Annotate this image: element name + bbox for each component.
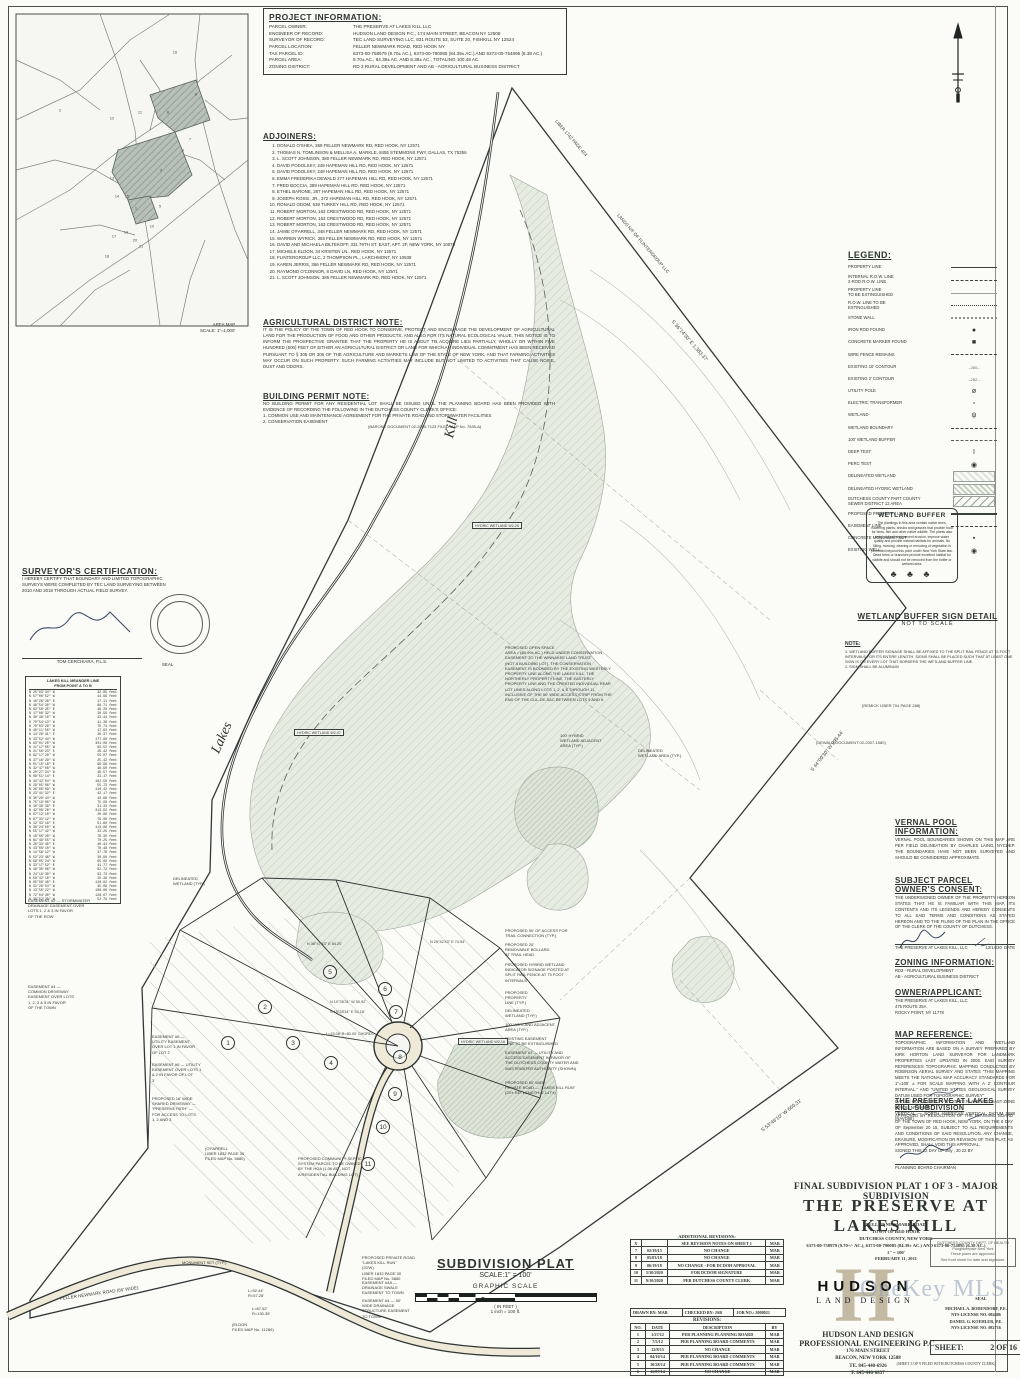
legend-symbol-g-: ▫	[950, 399, 998, 408]
consent-body: THE UNDERSIGNED OWNER OF THE PROPERTY HE…	[895, 895, 1015, 930]
owner-title: OWNER/APPLICANT:	[895, 988, 1015, 997]
zoning-body: RD3 - RURAL DEVELOPMENT AB - AGRICULTURA…	[895, 968, 1015, 980]
legend-row: ELECTRIC TRANSFORMER▫	[848, 399, 998, 408]
legend-symbol-line-dotted	[950, 301, 998, 310]
adjoiner-item: DAVID PODOLSKY, 249 HAPEMAN HILL RD, RED…	[277, 163, 555, 170]
legend-label: PROPERTY LINE	[848, 265, 944, 270]
meander-title: LAKES KILL MEANDER LINE FROM POINT A TO …	[29, 679, 117, 690]
wetland-sign-title: WETLAND BUFFER	[871, 512, 953, 519]
project-info-label: SURVEYOR OF RECORD:	[269, 37, 347, 44]
tree-icons: ♣ ♣ ♣	[871, 569, 953, 579]
legend-symbol-g-: ◉	[950, 460, 998, 469]
legend-label: STONE WALL	[848, 316, 944, 321]
legend-symbol-g-I: I	[950, 448, 998, 457]
adjoiner-item: FLINTERGROUP LLC, 2 THOMPSON PL., LARCHM…	[277, 255, 555, 262]
legend-label: DUTCHESS COUNTY PART COUNTY SEWER DISTRI…	[848, 497, 944, 507]
legend-symbol-line-stone	[950, 314, 998, 323]
legend-label: INTERNAL R.O.W. LINE 2-ROD R.O.W. LINE	[848, 275, 944, 285]
legend-label: DELINEATED HYDRIC WETLAND	[848, 487, 944, 492]
pe-names: MICHAEL A. BODENDORF, P.E. NYS LICENSE N…	[938, 1306, 1014, 1331]
legend-label: DELINEATED WETLAND	[848, 474, 944, 479]
consent-signer: THE PRESERVE AT LAKES KILL, LLC	[895, 945, 968, 950]
project-info-label: PARCEL LOCATION:	[269, 44, 347, 51]
legend-row: STONE WALL	[848, 314, 998, 323]
legend-row: IRON ROD FOUND●	[848, 326, 998, 335]
owner-applicant: OWNER/APPLICANT: THE PRESERVE AT LAKES K…	[895, 988, 1015, 1016]
surveyor-seal	[150, 594, 210, 654]
adjoiner-item: EMMA FREDERIKA DEWALD 277 HAPEMAN HILL R…	[277, 176, 555, 183]
legend-row: WIRE FENCE REMAINS	[848, 350, 998, 359]
project-info-value: HUDSON LAND DESIGN P.C., 174 MAIN STREET…	[353, 31, 561, 38]
legend-symbol-line-faint	[950, 289, 998, 298]
wetland-buffer-sign: WETLAND BUFFER The plantings in this are…	[866, 508, 958, 583]
surveyor-certification: SURVEYOR'S CERTIFICATION: I HEREBY CERTI…	[22, 566, 232, 594]
project-info-value: FELLER NEWMARK ROAD, RED HOOK NY	[353, 44, 561, 51]
project-info-value: 9.70± AC., 84.39± AC. AND 6.38± AC., TOT…	[353, 57, 561, 64]
sheet-number-box: SHEET: 2 OF 16	[930, 1340, 1020, 1355]
legend-row: WETLAND BOUNDARY	[848, 424, 998, 433]
adjoiner-item: ROBERT MORTON, 163 CRESTWOOD RD, RED HOO…	[277, 222, 555, 229]
legend-row: DELINEATED WETLAND	[848, 472, 998, 481]
legend-label: EXISTING 2' CONTOUR	[848, 377, 944, 382]
graphic-scale-bar	[415, 1293, 597, 1302]
firm-name: HUDSON LAND DESIGN	[778, 1330, 958, 1339]
project-info-box: PROJECT INFORMATION: PARCEL OWNER:THE PR…	[263, 8, 567, 75]
project-info-label: TAX PARCEL ID:	[269, 51, 347, 58]
north-arrow	[952, 24, 964, 102]
seal-word: SEAL	[162, 662, 173, 667]
health-dept-stamp: DUTCHESS COUNTY DEPT. OF HEALTH Poughkee…	[930, 1238, 1016, 1267]
legend-label: CONCRETE MARKER FOUND	[848, 340, 944, 345]
project-info-value: TEC LAND SURVEYING LLC, 831 ROUTE 52, SU…	[353, 37, 561, 44]
wetland-sign-body: The plantings in this area contain nativ…	[871, 521, 953, 567]
adjoiner-item: THOMAS N. TOMLINSON & MELLISA A. MARKLE,…	[277, 150, 555, 157]
revision-row: 11/27/12PER PLANNING PLANNING BOARDMAB	[631, 1331, 784, 1338]
legend-row: WETLANDψ	[848, 411, 998, 420]
legend-row: EXISTING 2' CONTOUR–282–	[848, 375, 998, 384]
checked-by: CHECKED BY: JSB	[683, 1309, 735, 1316]
additional-revisions-table: ADDITIONAL REVISIONS: XSEE REVISION NOTE…	[630, 1234, 784, 1285]
legend-row: DEEP TESTI	[848, 448, 998, 457]
additional-revision-row: 702/19/15NO CHANGEMAB	[631, 1247, 784, 1254]
zoning-info: ZONING INFORMATION: RD3 - RURAL DEVELOPM…	[895, 958, 1015, 980]
revision-row: 312/8/13NO CHANGEMAB	[631, 1346, 784, 1353]
legend-symbol-swatch-hydric	[950, 485, 998, 494]
inset-area-map	[16, 14, 248, 326]
project-info-label: ENGINEER OF RECORD:	[269, 31, 347, 38]
legend-label: UTILITY POLE	[848, 389, 944, 394]
project-info-value: THE PRESERVE AT LAKES KILL LLC	[353, 24, 561, 31]
legend-symbol-line-solid	[950, 263, 998, 272]
legend-symbol-g-: ●	[950, 326, 998, 335]
vernal-title: VERNAL POOL INFORMATION:	[895, 818, 1015, 836]
vernal-pool-info: VERNAL POOL INFORMATION: VERNAL POOL BOU…	[895, 818, 1015, 861]
additional-revision-row: 805/03/18NO CHANGEMAB	[631, 1254, 784, 1261]
plat-title: SUBDIVISION PLAT	[398, 1256, 613, 1271]
plat-sheet: AREA MAP SCALE: 1"=1,000' PROJECT INFORM…	[0, 0, 1020, 1378]
adjoiner-item: KAREN JERRIS, 366 FELLER NEWMARK RD, RED…	[277, 262, 555, 269]
permit-note-body: NO BUILDING PERMIT FOR ANY RESIDENTIAL L…	[263, 401, 555, 426]
legend-label: PROPERTY LINE TO BE EXTINGUISHED	[848, 288, 944, 298]
project-info-value: 6373-00-758979 (9.70± AC.), 6373-00-7900…	[353, 51, 561, 58]
meander-rows: N 25°03'34" W32.05 feetN 57°06'52" W44.9…	[29, 690, 117, 901]
wetland-detail-title: WETLAND BUFFER SIGN DETAIL	[845, 612, 1010, 621]
project-info-value: RD 3 RURAL DEVELOPMENT AND AB - AGRICULT…	[353, 64, 561, 71]
inset-caption: AREA MAP SCALE: 1"=1,000'	[200, 322, 235, 334]
onekey-mls-watermark: OneKey MLS	[860, 1276, 1005, 1303]
revision-row: 27/5/12PER PLANNING BOARD COMMENTSMAB	[631, 1338, 784, 1345]
additional-revision-row: 906/19/18NO CHANGE - FOR DCDOH APPROVALM…	[631, 1262, 784, 1269]
legend-row: CONCRETE MARKER FOUND■	[848, 338, 998, 347]
legend-label: WETLAND	[848, 413, 944, 418]
surveyor-body: I HEREBY CERTIFY THAT BOUNDARY AND LIMIT…	[22, 576, 172, 594]
meander-line-table: LAKES KILL MEANDER LINE FROM POINT A TO …	[25, 676, 121, 904]
subdivision-approval: THE PRESERVE AT LAKES KILL SUBDIVISION A…	[895, 1098, 1013, 1170]
wetland-note-title: NOTE:	[845, 641, 861, 647]
additional-revision-row: 105/30/2020FOR DCDOH SIGNATUREMAB	[631, 1269, 784, 1276]
owner-consent: SUBJECT PARCEL OWNER'S CONSENT: THE UNDE…	[895, 876, 1015, 950]
legend-symbol-g-: ■	[950, 338, 998, 347]
consent-signature-line: THE PRESERVE AT LAKES KILL, LLC 12/14/20…	[895, 944, 1015, 950]
adjoiner-item: MICHELE ELDON, 34 KRISTEN LN., RED HOOK,…	[277, 249, 555, 256]
revisions-header: DESCRIPTION	[670, 1324, 766, 1331]
adjoiner-item: DAVID AND MICHAELA BILTEKOFF, 331 79TH S…	[277, 242, 555, 249]
adjoiner-item: RAYMOND O'CONNOR, 8 DAVID LN, RED HOOK, …	[277, 269, 555, 276]
wetland-note-body: 1. WETLAND BUFFER SIGNAGE SHALL BE AFFIX…	[845, 650, 1013, 671]
legend-label: WIRE FENCE REMAINS	[848, 353, 944, 358]
adjoiner-item: ROBERT MORTON, 163 CRESTWOOD RD, RED HOO…	[277, 216, 555, 223]
adjoiner-item: ETHEL BARONE, 287 HAPEMAN HILL RD, RED H…	[277, 189, 555, 196]
job-no: JOB NO.: 2008021	[734, 1309, 785, 1316]
legend-symbol-swatch-wetland	[950, 472, 998, 481]
revisions-header: DATE	[645, 1324, 669, 1331]
map-ref-title: MAP REFERENCE:	[895, 1030, 1015, 1039]
legend-row: PROPERTY LINE TO BE EXTINGUISHED	[848, 288, 998, 298]
adjoiner-item: RONALD ODOM, 538 TURKEY HILL RD, RED HOO…	[277, 202, 555, 209]
vernal-body: VERNAL POOL BOUNDARIES SHOWN ON THIS MAP…	[895, 837, 1015, 861]
adjoiner-item: WARREN WYRICK, 355 FELLER NEWMARK RD, RE…	[277, 236, 555, 243]
approval-body: APPROVED BY RESOLUTION OF THE PLANNING B…	[895, 1113, 1013, 1154]
adjoiner-item: L. SCOTT JOHNSON, 385 FELLER NEWMARK RD,…	[277, 275, 555, 282]
surveyor-title: SURVEYOR'S CERTIFICATION:	[22, 566, 232, 576]
additional-revision-row: 119/10/2020PER DUTCHESS COUNTY CLERKMAB	[631, 1277, 784, 1284]
zoning-title: ZONING INFORMATION:	[895, 958, 1015, 967]
legend-row: PROPERTY LINE	[848, 263, 998, 272]
revisions-table: REVISIONS: NO.DATEDESCRIPTIONBY11/27/12P…	[630, 1318, 784, 1376]
legend-label: DEEP TEST	[848, 450, 944, 455]
adjoiners-block: ADJOINERS: DONALD O'SHEA, 369 FELLER NEW…	[263, 132, 555, 282]
legend-title: LEGEND:	[848, 250, 998, 260]
ag-note-title: AGRICULTURAL DISTRICT NOTE:	[263, 318, 555, 327]
legend-symbol-line-dashed	[950, 276, 998, 285]
sheet-label: SHEET:	[935, 1343, 964, 1352]
surveyor-signature	[30, 612, 130, 640]
consent-title: SUBJECT PARCEL OWNER'S CONSENT:	[895, 876, 1015, 894]
subdivision-plat-label: SUBDIVISION PLAT SCALE:1" = 100' GRAPHIC…	[398, 1256, 613, 1314]
consent-date: 12/14/20	[986, 945, 1002, 950]
revision-row: 611/07/14NO CHANGEMAB	[631, 1368, 784, 1375]
ag-note-body: IT IS THE POLICY OF THE TOWN OF RED HOOK…	[263, 327, 555, 370]
ag-district-note: AGRICULTURAL DISTRICT NOTE: IT IS THE PO…	[263, 318, 555, 370]
legend-row: PERC TEST◉	[848, 460, 998, 469]
adjoiners-title: ADJOINERS:	[263, 132, 555, 141]
sheet-footnote: (SHEET 3 OF 9 FILED WITH DUTCHESS COUNTY…	[880, 1362, 1012, 1366]
legend-row: EXISTING 10' CONTOUR–280–	[848, 363, 998, 372]
contours	[560, 270, 790, 990]
legend-label: PERC TEST	[848, 462, 944, 467]
sheet-value: 2 OF 16	[990, 1343, 1017, 1352]
revision-row: 404/10/14PER PLANNING BOARD COMMENTSMAB	[631, 1353, 784, 1360]
legend-symbol-line-dashed	[950, 424, 998, 433]
project-info-title: PROJECT INFORMATION:	[269, 12, 561, 22]
legend-row: UTILITY POLEø	[848, 387, 998, 396]
legend-symbol-g-: ø	[950, 387, 998, 396]
legend-row: DUTCHESS COUNTY PART COUNTY SEWER DISTRI…	[848, 497, 998, 507]
legend-symbol-line-longdash	[950, 436, 998, 445]
permit-note-title: BUILDING PERMIT NOTE:	[263, 392, 555, 401]
project-info-label: PARCEL AREA:	[269, 57, 347, 64]
adjoiner-item: L. SCOTT JOHNSON, 380 FELLER NEWMARK RD,…	[277, 156, 555, 163]
legend-label: R.O.W. LINE TO BE EXTINGUISHED	[848, 301, 944, 311]
adjoiner-item: DONALD O'SHEA, 369 FELLER NEWMARK RD, RE…	[277, 143, 555, 150]
revisions-header: NO.	[631, 1324, 646, 1331]
adjoiner-item: ROBERT MORTON, 163 CRESTWOOD RD, RED HOO…	[277, 209, 555, 216]
owner-body: THE PRESERVE AT LAKES KILL, LLC 475 ROUT…	[895, 998, 1015, 1016]
project-info-label: PARCEL OWNER:	[269, 24, 347, 31]
legend-symbol-t-280-: –280–	[950, 363, 998, 372]
legend-label: ELECTRIC TRANSFORMER	[848, 401, 944, 406]
project-info-label: ZONING DISTRICT:	[269, 64, 347, 71]
legend-symbol-g-: ψ	[950, 411, 998, 420]
plat-scale: SCALE:1" = 100'	[398, 1272, 613, 1279]
legend-row: 100' WETLAND BUFFER	[848, 436, 998, 445]
additional-revision-row: XSEE REVISION NOTES ON SHEET 1MAB	[631, 1240, 784, 1247]
wetland-sign-note: NOTE: 1. WETLAND BUFFER SIGNAGE SHALL BE…	[845, 632, 1013, 671]
wetland-sign-detail: WETLAND BUFFER SIGN DETAIL NOT TO SCALE	[845, 612, 1010, 627]
adjoiner-item: FRED BOCCIA, 289 HAPEMAN HILL RD, RED HO…	[277, 183, 555, 190]
drawn-by-row: DRAWN BY: MAB CHECKED BY: JSB JOB NO.: 2…	[630, 1308, 786, 1317]
project-info-rows: PARCEL OWNER:THE PRESERVE AT LAKES KILL …	[269, 24, 561, 71]
legend-label: IRON ROD FOUND	[848, 328, 944, 333]
legend-symbol-t-282-: –282–	[950, 375, 998, 384]
building-permit-note: BUILDING PERMIT NOTE: NO BUILDING PERMIT…	[263, 392, 555, 426]
legend-label: EXISTING 10' CONTOUR	[848, 365, 944, 370]
approval-title: THE PRESERVE AT LAKES KILL SUBDIVISION	[895, 1098, 1013, 1112]
meander-row: N 36°52'30" W52.79 feet	[29, 897, 117, 901]
legend-symbol-line-fence	[950, 350, 998, 359]
wetland-detail-sub: NOT TO SCALE	[845, 621, 1010, 627]
surveyor-name: TOM CERCHIARA, P.L.S.	[22, 658, 142, 664]
approval-signer: PLANNING BOARD CHAIRMAN	[895, 1165, 956, 1170]
adjoiner-item: DAVID PODOLSKY, 249 HAPEMAN HILL RD, RED…	[277, 169, 555, 176]
scale-ratio: 1 inch = 100 ft.	[491, 1309, 521, 1314]
legend-row: R.O.W. LINE TO BE EXTINGUISHED	[848, 301, 998, 311]
legend-label: 100' WETLAND BUFFER	[848, 438, 944, 443]
graphic-scale-label: GRAPHIC SCALE	[398, 1283, 613, 1290]
drawn-by: DRAWN BY: MAB	[631, 1309, 683, 1316]
adjoiner-item: JAMIE O'FARRELL, 348 FELLER NEWMARK RD, …	[277, 229, 555, 236]
legend-row: INTERNAL R.O.W. LINE 2-ROD R.O.W. LINE	[848, 275, 998, 285]
adjoiners-list: DONALD O'SHEA, 369 FELLER NEWMARK RD, RE…	[263, 143, 555, 282]
legend-row: DELINEATED HYDRIC WETLAND	[848, 485, 998, 494]
legend-label: WETLAND BOUNDARY	[848, 426, 944, 431]
legend-symbol-swatch-sewer	[950, 497, 998, 506]
revision-row: 510/28/14PER PLANNING BOARD COMMENTSMAB	[631, 1361, 784, 1368]
adjoiner-item: JOSEPH ROSSI, JR., 372 HAPEMAN HILL RD, …	[277, 196, 555, 203]
